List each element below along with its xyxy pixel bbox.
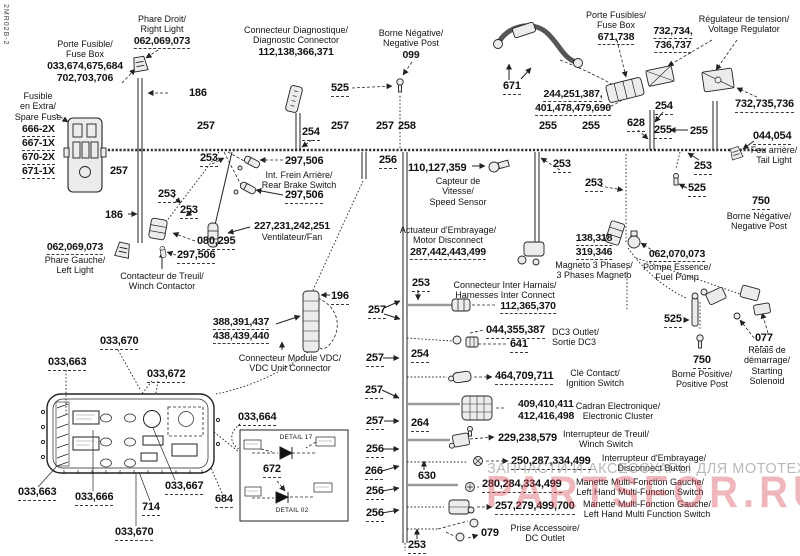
part-number: 641 bbox=[510, 339, 528, 353]
fr-line: Connecteur Diagnostique/ bbox=[244, 25, 348, 35]
label-motor-disconnect: Actuateur d'Embrayage/ Motor Disconnect … bbox=[400, 225, 496, 260]
callout: 257 bbox=[376, 120, 394, 132]
voltage-regulator-icon bbox=[646, 65, 675, 86]
part-number: 388,391,437 bbox=[213, 317, 269, 330]
part-number: 401,478,479,690 bbox=[535, 103, 611, 116]
part-number: 750 bbox=[752, 196, 770, 210]
label-spare-fuse: Fusible en Extra/ Spare Fuse bbox=[15, 91, 62, 122]
label-regulator-parts: 732,734, 736,737 bbox=[653, 25, 692, 53]
label-fan: 227,231,242,251 Ventilateur/Fan bbox=[254, 220, 330, 242]
callout: 525 bbox=[688, 183, 706, 197]
part-number: 702,703,706 bbox=[47, 72, 123, 84]
part-number: 033,664 bbox=[238, 412, 276, 426]
winch-contactor-icon bbox=[148, 218, 167, 240]
label-rear-brake-switch: Int. Frein Arrière/ Rear Brake Switch bbox=[262, 170, 337, 191]
label-starting-solenoid: Relais de démarrage/ Starting Solenoid bbox=[744, 345, 790, 386]
fr-line: Magneto 3 Phases/ bbox=[555, 260, 633, 270]
label-ignition-switch: Clé Contact/ Ignition Switch bbox=[566, 368, 624, 389]
callout: 186 bbox=[189, 87, 207, 99]
fr-line: Porte Fusible/ bbox=[47, 39, 123, 49]
callout: 256 bbox=[366, 486, 384, 500]
part-number: 666-2X bbox=[22, 124, 55, 137]
en-line: Left Light bbox=[45, 265, 106, 275]
solenoid-connector-icon bbox=[705, 287, 726, 305]
en-line: DC Outlet bbox=[510, 533, 579, 543]
callout: 256 bbox=[379, 155, 397, 169]
callout: 257 bbox=[365, 385, 383, 399]
fr-line: Borne Négative/ bbox=[379, 28, 444, 38]
en-line: DC3 Outlet/ bbox=[552, 327, 599, 337]
label-inter-harness: Connecteur Inter Harnais/ Harnesses Inte… bbox=[453, 280, 556, 301]
callout: 266 bbox=[365, 466, 383, 480]
fr-line: Connecteur Inter Harnais/ bbox=[453, 280, 556, 290]
label-negative-post-top: Borne Négative/ Negative Post 099 bbox=[379, 28, 444, 61]
dc-outlet-icon bbox=[456, 533, 464, 541]
part-number: 412,416,498 bbox=[518, 410, 574, 422]
part-number: 714 bbox=[142, 502, 160, 516]
fr-line: en Extra/ bbox=[15, 101, 62, 111]
part-number: 110,127,359 bbox=[408, 162, 466, 174]
detail-title: DETAIL 02 bbox=[276, 507, 309, 514]
part-number: 062,069,073 bbox=[47, 242, 103, 255]
callout: 257 bbox=[110, 165, 128, 177]
part-number: 033,672 bbox=[147, 369, 185, 383]
multifunction-switch-icon bbox=[449, 500, 474, 514]
fr-line: Phare Gauche/ bbox=[45, 255, 106, 265]
callout: 628 bbox=[627, 118, 645, 132]
callout: 255 bbox=[582, 120, 600, 132]
wiring-harness-icon bbox=[494, 22, 583, 68]
en-line: Fuse Box bbox=[47, 49, 123, 59]
label-inter-harness-parts: 112,365,370 bbox=[500, 300, 556, 314]
watermark-logo: PARTSFOR.RU bbox=[486, 468, 800, 518]
winch-switch-icon bbox=[448, 433, 470, 449]
part-number: 750 bbox=[693, 355, 711, 369]
spare-fuse-list: 666-2X 667-1X 670-2X 671-1X bbox=[22, 123, 55, 179]
fr-line: Connecteur Module VDC/ bbox=[239, 353, 342, 363]
callout: 253 bbox=[585, 178, 603, 192]
part-number: 227,231,242,251 bbox=[254, 220, 330, 232]
dc-outlet-icon bbox=[453, 336, 461, 344]
part-number: 044,355,387 bbox=[486, 325, 545, 339]
part-number: 670-2X bbox=[22, 152, 55, 165]
solenoid-connector-icon bbox=[753, 303, 770, 316]
negative-post-icon bbox=[397, 79, 403, 92]
left-light-icon bbox=[115, 242, 132, 259]
label-speed-sensor: Capteur de Vitesse/ Speed Sensor bbox=[429, 176, 486, 207]
en-line: Right Light bbox=[134, 24, 190, 34]
wiring-diagram-page: 2MR02B-2 Porte Fusible/ Fuse Box 033,674… bbox=[0, 0, 800, 556]
part-number: 736,737 bbox=[655, 40, 692, 53]
part-number: 080,295 bbox=[197, 236, 235, 250]
label-dc-outlet-bottom: Prise Accessoire/ DC Outlet bbox=[510, 523, 579, 544]
fr-line: Int. Frein Arrière/ bbox=[262, 170, 337, 180]
en-line: 3 Phases Magneto bbox=[555, 270, 633, 280]
dc-outlet-connector-icon bbox=[466, 337, 478, 347]
part-number: 732,734, bbox=[653, 26, 692, 39]
fr-line: Porte Fusibles/ bbox=[586, 10, 646, 20]
part-number: 297,506 bbox=[285, 190, 323, 204]
callout: 196 bbox=[331, 291, 349, 305]
dc-outlet-icon bbox=[470, 519, 478, 527]
fr-line: Capteur de bbox=[429, 176, 486, 186]
connector-icon bbox=[160, 246, 167, 258]
callout: 525 bbox=[331, 83, 349, 97]
part-number: 244,251,387, bbox=[544, 89, 603, 102]
brake-switch-icon bbox=[243, 155, 260, 169]
solenoid-connector-icon bbox=[740, 285, 760, 301]
label-diagnostic-connector: Connecteur Diagnostique/ Diagnostic Conn… bbox=[244, 25, 348, 58]
part-number: 438,439,440 bbox=[213, 331, 269, 344]
part-number: 229,238,579 bbox=[498, 432, 557, 444]
label-negative-post-right: Borne Négative/ Negative Post bbox=[727, 211, 792, 232]
label-right-light: Phare Droit/ Right Light 062,069,073 bbox=[134, 14, 190, 49]
post-icon bbox=[674, 174, 679, 186]
label-voltage-regulator: Régulateur de tension/ Voltage Regulator bbox=[699, 14, 790, 35]
label-harness-parts: 244,251,387, 401,478,479,690 bbox=[535, 88, 611, 116]
fr-line: Régulateur de tension/ bbox=[699, 14, 790, 24]
en-line: Electronic Cluster bbox=[576, 411, 661, 421]
callout: 255 bbox=[539, 120, 557, 132]
electrical-center-panel-icon bbox=[41, 394, 219, 474]
part-number: 287,442,443,499 bbox=[410, 247, 486, 260]
callout: 254 bbox=[302, 127, 320, 141]
fr-line: Feu arrière/ bbox=[751, 145, 798, 155]
label-tail-light: Feu arrière/ Tail Light bbox=[751, 145, 798, 166]
callout: 257 bbox=[368, 305, 386, 319]
label-winch-switch: Interrupteur de Treuil/ Winch Switch bbox=[563, 429, 649, 450]
en-line: Tail Light bbox=[751, 155, 798, 165]
callout: 264 bbox=[411, 418, 429, 432]
fr-line: Interrupteur de Treuil/ bbox=[563, 429, 649, 439]
callout: 253 bbox=[158, 189, 176, 203]
part-number: 062,069,073 bbox=[134, 36, 190, 49]
en-line: Ignition Switch bbox=[566, 378, 624, 388]
callout: 255 bbox=[654, 125, 672, 139]
en-line: VDC Unit Connector bbox=[239, 363, 342, 373]
en-line: Negative Post bbox=[379, 38, 444, 48]
callout: 254 bbox=[411, 349, 429, 363]
callout: 255 bbox=[690, 125, 708, 137]
part-number: 297,506 bbox=[285, 155, 323, 167]
part-number: 684 bbox=[215, 494, 233, 508]
callout: 257 bbox=[197, 120, 215, 132]
fuse-box-icon bbox=[605, 77, 644, 103]
label-electronic-cluster: Cadran Electronique/ Electronic Cluster bbox=[576, 401, 661, 422]
callout: 186 bbox=[105, 209, 123, 221]
label-left-light: 062,069,073 Phare Gauche/ Left Light bbox=[45, 241, 106, 276]
label-cluster-parts: 409,410,411 412,416,498 bbox=[518, 398, 574, 422]
callout: 256 bbox=[366, 508, 384, 522]
fr-en-line: Ventilateur/Fan bbox=[254, 232, 330, 242]
callout: 253 bbox=[553, 159, 571, 173]
callout: 253 bbox=[200, 153, 218, 167]
part-number: 044,054 bbox=[753, 131, 791, 145]
multifunction-gauge-icon bbox=[466, 483, 475, 492]
label-fuse-box-right: Porte Fusibles/ Fuse Box 671,738 bbox=[586, 10, 646, 45]
fr-line: Fusible bbox=[15, 91, 62, 101]
voltage-regulator-icon bbox=[702, 68, 734, 92]
cluster-connector-icon bbox=[462, 396, 492, 420]
callout: 630 bbox=[418, 470, 436, 482]
part-number: 079 bbox=[481, 527, 499, 539]
tail-light-icon bbox=[729, 146, 743, 160]
label-vdc-connector: Connecteur Module VDC/ VDC Unit Connecto… bbox=[239, 353, 342, 374]
en-line: Motor Disconnect bbox=[400, 235, 496, 245]
ignition-switch-icon bbox=[448, 371, 472, 384]
fr-line: Borne Négative/ bbox=[727, 211, 792, 221]
en-line: Winch Switch bbox=[563, 439, 649, 449]
fr-line: Pompe Essence/ bbox=[643, 262, 711, 272]
part-number: 409,410,411 bbox=[518, 398, 574, 410]
vdc-connector-icon bbox=[303, 291, 319, 352]
fr-line: Clé Contact/ bbox=[566, 368, 624, 378]
label-magneto: 138,318 319,346 Magneto 3 Phases/ 3 Phas… bbox=[555, 232, 633, 281]
en-line: Negative Post bbox=[727, 221, 792, 231]
en-line: Positive Post bbox=[672, 379, 733, 389]
inter-harness-connector-icon bbox=[452, 299, 470, 311]
callout: 253 bbox=[412, 278, 430, 292]
fr-line: Sortie DC3 bbox=[552, 337, 599, 347]
battery-cable-icon bbox=[692, 293, 698, 326]
part-number: 732,735,736 bbox=[735, 99, 794, 113]
en-line: Voltage Regulator bbox=[699, 24, 790, 34]
part-number: 297,506 bbox=[177, 250, 215, 264]
fr-line: Actuateur d'Embrayage/ bbox=[400, 225, 496, 235]
label-winch-contactor: Contacteur de Treuil/ Winch Contactor bbox=[120, 271, 204, 292]
part-number: 033,674,675,684 bbox=[47, 60, 123, 72]
fr-line: Cadran Electronique/ bbox=[576, 401, 661, 411]
right-light-icon bbox=[132, 56, 148, 72]
callout: 256 bbox=[366, 444, 384, 458]
spare-fuse-box-icon bbox=[64, 118, 106, 192]
callout: 525 bbox=[664, 314, 682, 328]
part-number: 672 bbox=[263, 464, 281, 478]
speed-sensor-icon bbox=[488, 158, 510, 173]
positive-post-icon bbox=[697, 335, 703, 348]
en-line: Fuse Box bbox=[586, 20, 646, 30]
en-line: Solenoid bbox=[744, 376, 790, 386]
part-number: 033,663 bbox=[18, 487, 56, 501]
part-number: 033,670 bbox=[100, 336, 138, 350]
disconnect-button-icon bbox=[474, 457, 483, 466]
fr-line: Borne Positive/ bbox=[672, 369, 733, 379]
label-fuel-pump: 062,070,073 Pompe Essence/ Fuel Pump bbox=[643, 248, 711, 283]
brake-switch-icon bbox=[239, 181, 256, 195]
label-vdc-parts: 388,391,437 438,439,440 bbox=[213, 316, 269, 344]
en-line: Spare Fuse bbox=[15, 112, 62, 122]
fr-line: Vitesse/ bbox=[429, 186, 486, 196]
callout: 254 bbox=[655, 101, 673, 115]
part-number: 062,070,073 bbox=[649, 249, 705, 262]
callout: 253 bbox=[408, 540, 426, 554]
part-number: 671 bbox=[503, 81, 521, 95]
en-line: Speed Sensor bbox=[429, 197, 486, 207]
part-number: 464,709,711 bbox=[495, 371, 553, 385]
callout: 257 bbox=[366, 416, 384, 430]
en-line: Winch Contactor bbox=[120, 281, 204, 291]
part-number: 112,365,370 bbox=[500, 301, 556, 314]
diagnostic-connector-icon bbox=[285, 85, 303, 113]
part-number: 138,318 bbox=[576, 233, 613, 246]
callout: 257 bbox=[331, 120, 349, 132]
fr-line: Phare Droit/ bbox=[134, 14, 190, 24]
detail-title: DETAIL 17 bbox=[280, 434, 313, 441]
part-number: 667-1X bbox=[22, 138, 55, 151]
callout: 258 bbox=[398, 120, 416, 132]
label-positive-post: Borne Positive/ Positive Post bbox=[672, 369, 733, 390]
fr-line: Relais de bbox=[744, 345, 790, 355]
part-number: 033,670 bbox=[115, 527, 153, 541]
part-number: 671-1X bbox=[22, 166, 55, 179]
callout: 257 bbox=[366, 353, 384, 367]
fr-line: Contacteur de Treuil/ bbox=[120, 271, 204, 281]
label-fuse-box-main: Porte Fusible/ Fuse Box 033,674,675,684 … bbox=[47, 39, 123, 84]
doc-code: 2MR02B-2 bbox=[2, 4, 9, 45]
part-number: 033,663 bbox=[48, 357, 86, 371]
motor-disconnect-icon bbox=[518, 242, 544, 265]
fr-line: Prise Accessoire/ bbox=[510, 523, 579, 533]
callout: 253 bbox=[694, 161, 712, 175]
en-line: Starting bbox=[744, 366, 790, 376]
en-line: Fuel Pump bbox=[643, 272, 711, 282]
part-number: 112,138,366,371 bbox=[244, 46, 348, 58]
en-line: Diagnostic Connector bbox=[244, 35, 348, 45]
part-number: 671,738 bbox=[598, 32, 635, 45]
part-number: 033,666 bbox=[75, 492, 113, 506]
fr-line: démarrage/ bbox=[744, 355, 790, 365]
label-dc3-outlet: DC3 Outlet/ Sortie DC3 bbox=[552, 327, 599, 348]
part-number: 033,667 bbox=[165, 481, 203, 495]
part-number: 319,346 bbox=[576, 247, 613, 260]
part-number: 099 bbox=[379, 49, 444, 61]
callout: 253 bbox=[180, 205, 198, 219]
